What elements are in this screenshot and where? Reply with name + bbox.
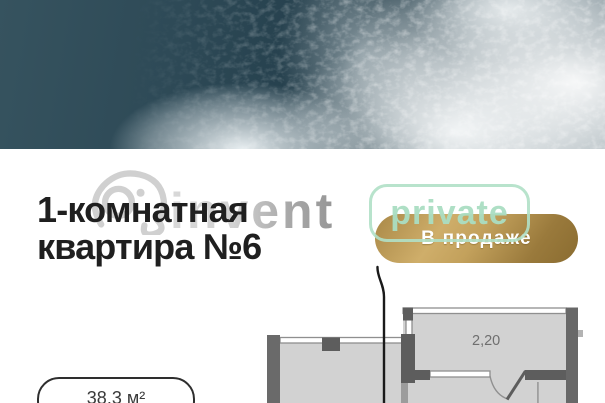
status-badge-label: В продаже <box>421 228 532 250</box>
title-line-1: 1-комнатная <box>37 191 261 228</box>
wall-left <box>267 335 280 403</box>
wall-balcony-corner <box>403 308 413 321</box>
wall-middle-stub <box>401 383 408 403</box>
wall-pier-top <box>322 338 340 352</box>
partition-line <box>537 382 539 403</box>
dimension-label: 2,20 <box>472 333 500 349</box>
window-sill <box>430 371 490 377</box>
room-right-interior <box>403 312 566 403</box>
wall-right <box>566 308 578 403</box>
area-badge-label: 38.3 м² <box>87 388 145 403</box>
window-balcony-top <box>403 308 566 314</box>
title-line-2: квартира №6 <box>37 228 261 265</box>
area-badge[interactable]: 38.3 м² <box>37 377 195 403</box>
listing-card: invent В продаже private 1-комнатная ква… <box>0 0 605 403</box>
wall-right-notch <box>578 330 583 337</box>
page-title: 1-комнатная квартира №6 <box>37 191 261 265</box>
wall-bottom-left-block <box>412 370 430 380</box>
status-badge[interactable]: В продаже <box>375 214 578 263</box>
wall-bottom-right-block <box>525 370 566 380</box>
